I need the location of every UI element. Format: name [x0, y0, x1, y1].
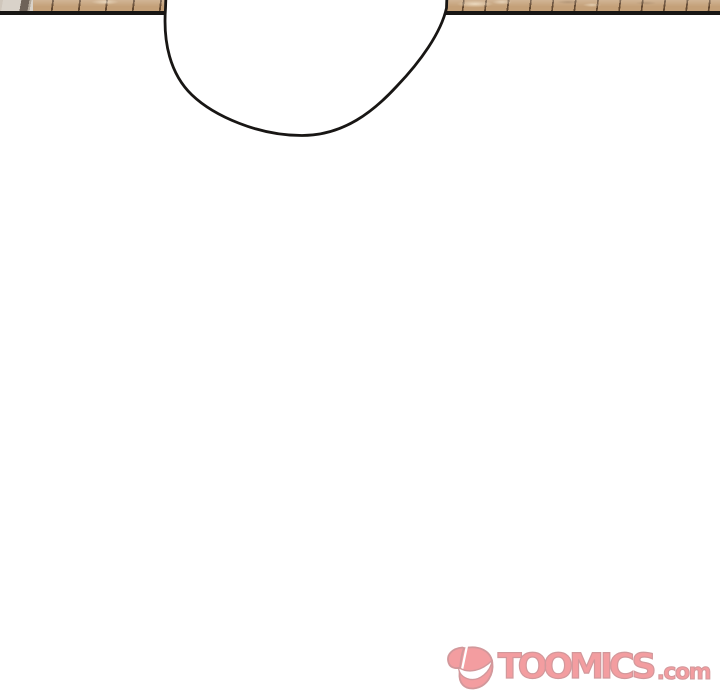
toomics-brand-text: TOOMICS — [498, 650, 657, 685]
toomics-watermark: TOOMICS .com — [445, 643, 712, 692]
toomics-smile-icon — [445, 643, 495, 692]
toomics-domain-text: .com — [657, 662, 712, 684]
comic-panel-strip — [0, 0, 720, 15]
wall-edge — [0, 0, 33, 11]
wood-floor-right — [420, 0, 720, 15]
character-head-outline — [0, 0, 720, 150]
comic-page: TOOMICS .com — [0, 0, 720, 700]
